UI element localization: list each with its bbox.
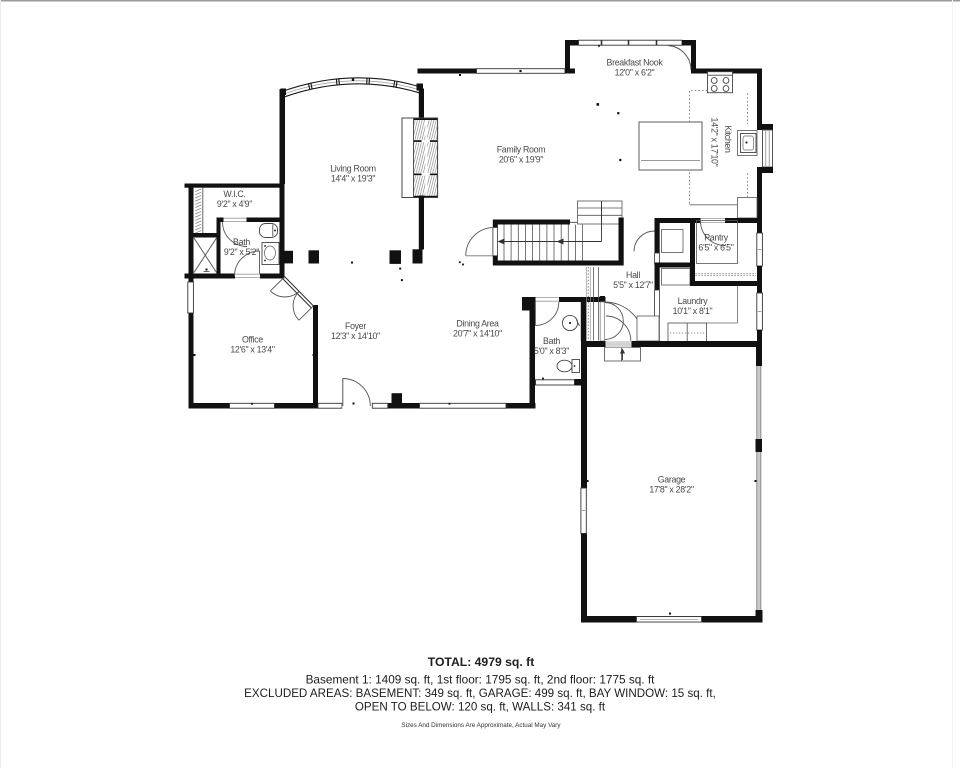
svg-text:Laundry: Laundry [678,296,709,306]
svg-text:Bath: Bath [233,237,250,247]
svg-text:W.I.C.: W.I.C. [223,189,245,199]
svg-text:Family Room: Family Room [497,145,546,155]
svg-text:14'2" x 17'10": 14'2" x 17'10" [710,118,720,167]
svg-text:Breakfast Nook: Breakfast Nook [607,58,664,68]
svg-text:OPEN TO BELOW: 120 sq. ft, WAL: OPEN TO BELOW: 120 sq. ft, WALLS: 341 sq… [355,701,606,714]
svg-text:12'0" x 6'2": 12'0" x 6'2" [615,68,655,78]
svg-text:6'5" x 6'5": 6'5" x 6'5" [698,243,733,253]
svg-text:Dining Area: Dining Area [456,319,499,329]
svg-text:12'6" x 13'4": 12'6" x 13'4" [230,345,275,355]
svg-text:14'4" x 19'3": 14'4" x 19'3" [331,174,376,184]
svg-text:9'2" x 4'9": 9'2" x 4'9" [217,199,252,209]
svg-text:10'1" x 8'1": 10'1" x 8'1" [673,306,713,316]
svg-text:5'5" x 12'7": 5'5" x 12'7" [613,280,653,290]
svg-text:EXCLUDED AREAS: BASEMENT: 349: EXCLUDED AREAS: BASEMENT: 349 sq. ft, GA… [244,687,716,700]
svg-text:Kitchen: Kitchen [723,125,733,153]
svg-text:5'0" x 8'3": 5'0" x 8'3" [534,346,569,356]
svg-text:Hall: Hall [626,270,640,280]
svg-text:Pantry: Pantry [704,233,729,243]
svg-text:Sizes And Dimensions Are Appro: Sizes And Dimensions Are Approximate, Ac… [401,722,561,729]
svg-text:Living Room: Living Room [330,164,376,174]
svg-text:20'6" x 19'9": 20'6" x 19'9" [499,155,544,165]
svg-text:Bath: Bath [543,336,560,346]
svg-text:Office: Office [242,335,263,345]
svg-text:Foyer: Foyer [345,321,366,331]
svg-text:TOTAL: 4979 sq. ft: TOTAL: 4979 sq. ft [428,655,535,669]
svg-text:12'3" x 14'10": 12'3" x 14'10" [331,331,380,341]
svg-text:Garage: Garage [658,475,686,485]
svg-text:17'8" x 28'2": 17'8" x 28'2" [649,485,694,495]
svg-text:20'7" x 14'10": 20'7" x 14'10" [453,329,502,339]
svg-text:Basement 1: 1409 sq. ft, 1st f: Basement 1: 1409 sq. ft, 1st floor: 1795… [306,672,656,686]
